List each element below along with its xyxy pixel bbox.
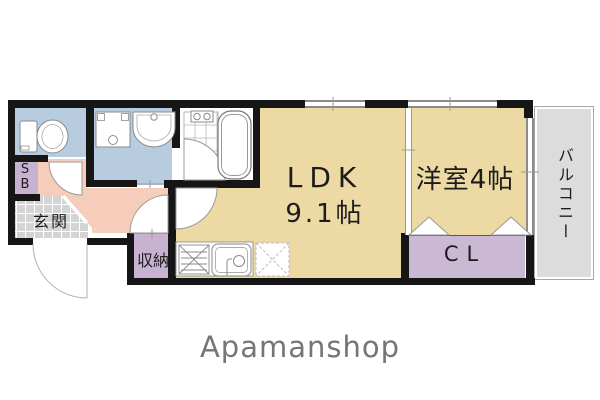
balcony-label: バルコニー — [552, 147, 576, 242]
western-room-label: 洋室4帖 — [393, 159, 537, 196]
vanity-sink-icon — [133, 112, 175, 147]
ldk-size-label: 9.1帖 — [255, 193, 395, 230]
washing-machine-pan-icon — [96, 112, 130, 147]
refrigerator-space-icon — [256, 243, 289, 276]
bathtub-icon — [218, 111, 251, 179]
toilet-icon — [20, 120, 68, 153]
closet-label: CL — [405, 242, 525, 266]
ldk-door-arc — [176, 188, 217, 229]
bath-faucet-icon — [191, 111, 213, 122]
kitchen-stove-icon — [179, 245, 209, 274]
entrance-door-arc — [33, 244, 87, 298]
shoe-box-label: S B — [12, 162, 38, 192]
brand-logo-text: Apamanshop — [150, 330, 450, 364]
toilet-door-arc — [49, 162, 82, 195]
hallway-door-arc — [130, 195, 168, 233]
storage-label: 収納 — [132, 247, 174, 271]
entrance-label: 玄関 — [26, 208, 76, 232]
ldk-label: LDK — [255, 161, 395, 194]
floorplan-canvas: LDK 9.1帖 洋室4帖 CL 収納 玄関 S B バルコニー Apamans… — [0, 0, 600, 400]
kitchen-sink-icon — [212, 244, 251, 276]
folding-closet-door-icon — [409, 217, 531, 235]
